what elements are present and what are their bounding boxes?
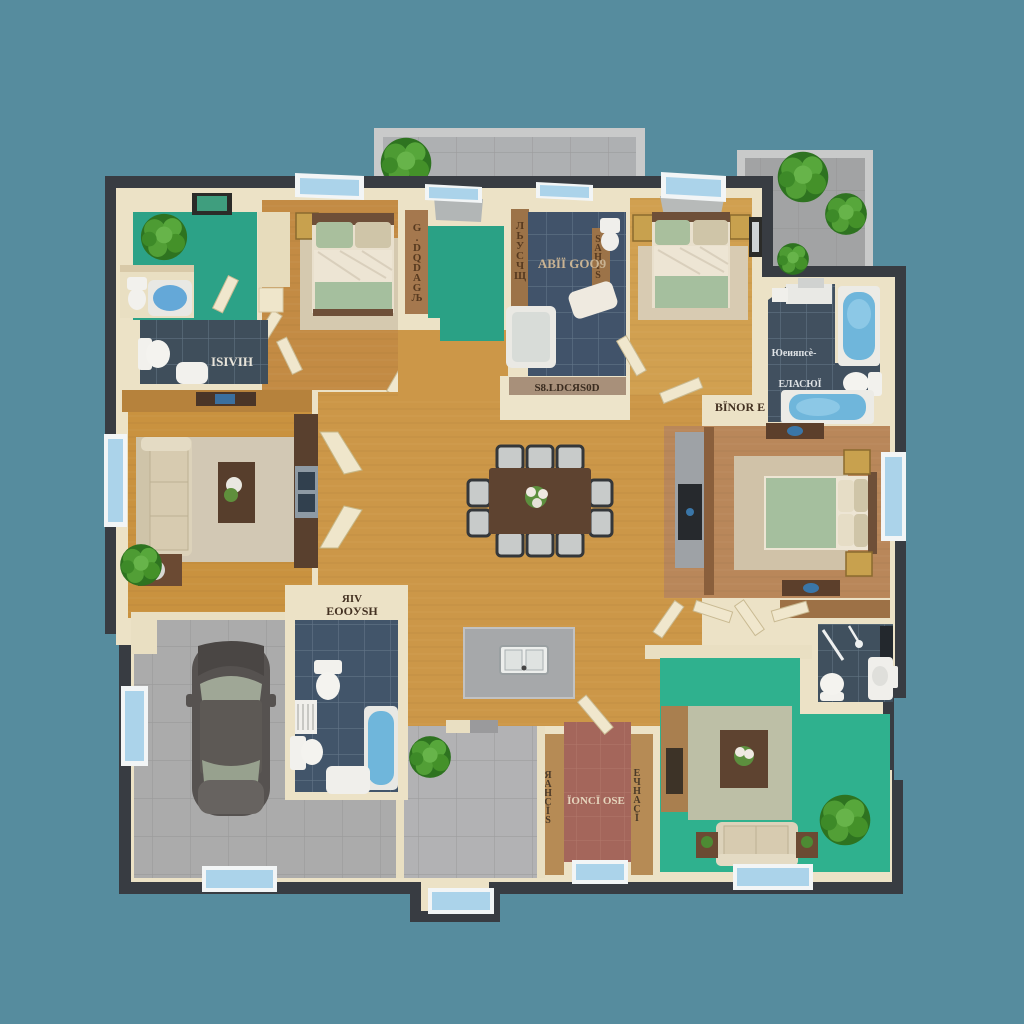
svg-text:BЇNOR Е: BЇNOR Е (715, 400, 765, 414)
svg-text:IЅIVIH: IЅIVIH (211, 354, 253, 369)
svg-text:G.DQDАGЉ: G.DQDАGЉ (411, 222, 423, 302)
svg-text:ЛЬУСЧЩ: ЛЬУСЧЩ (514, 220, 526, 281)
svg-text:ЕЛАСЮЇ: ЕЛАСЮЇ (778, 377, 821, 390)
svg-text:ЇONСЇ OЅЕ: ЇONСЇ OЅЕ (567, 794, 625, 807)
svg-text:Юеияпсѐ-: Юеияпсѐ- (772, 348, 817, 359)
svg-text:АBЇЇ GOO9: АBЇЇ GOO9 (538, 256, 607, 271)
svg-text:S8.LDСЯЅ0D: S8.LDСЯЅ0D (534, 382, 599, 394)
svg-text:EOOУЅH: EOOУЅH (326, 604, 378, 618)
svg-text:ЕЧНАСЇ: ЕЧНАСЇ (632, 768, 643, 822)
